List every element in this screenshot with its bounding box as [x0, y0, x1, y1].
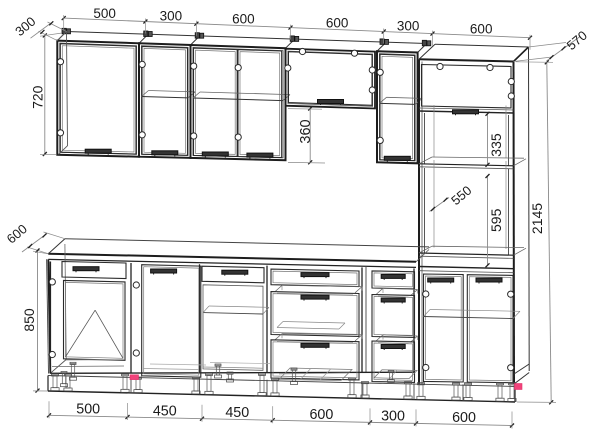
svg-text:600: 600	[326, 16, 349, 31]
svg-text:850: 850	[21, 308, 37, 332]
svg-text:500: 500	[76, 402, 100, 418]
svg-text:300: 300	[397, 19, 420, 34]
svg-text:600: 600	[470, 22, 493, 37]
svg-text:500: 500	[93, 6, 116, 21]
svg-text:450: 450	[153, 403, 177, 419]
svg-text:300: 300	[381, 408, 405, 424]
svg-text:720: 720	[30, 85, 46, 109]
svg-text:450: 450	[225, 405, 249, 421]
svg-text:300: 300	[160, 9, 183, 24]
svg-text:2145: 2145	[529, 203, 545, 234]
svg-text:600: 600	[309, 407, 333, 423]
svg-text:600: 600	[452, 410, 476, 426]
svg-text:360: 360	[298, 119, 314, 143]
svg-text:600: 600	[232, 12, 255, 27]
svg-text:335: 335	[488, 133, 504, 157]
svg-text:595: 595	[488, 208, 504, 232]
